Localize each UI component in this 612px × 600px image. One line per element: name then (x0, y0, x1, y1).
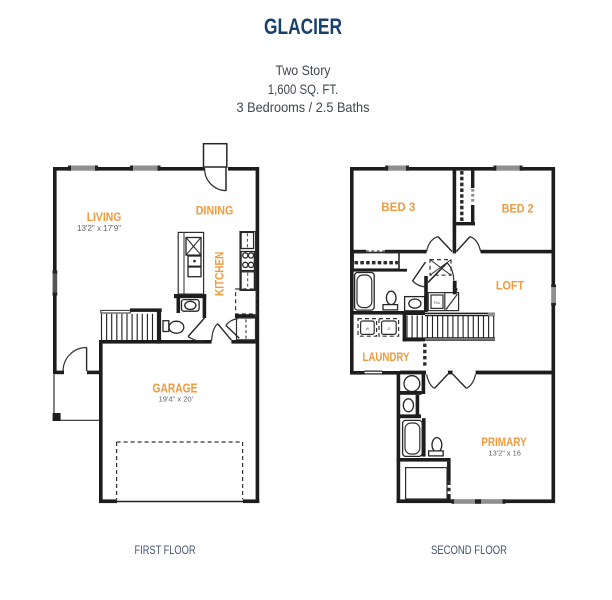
svg-text:FIRST FLOOR: FIRST FLOOR (135, 545, 196, 557)
svg-text:FAU: FAU (434, 301, 441, 305)
svg-text:GLACIER: GLACIER (264, 14, 342, 39)
svg-text:W: W (366, 327, 370, 331)
svg-text:3 Bedrooms / 2.5 Baths: 3 Bedrooms / 2.5 Baths (237, 99, 370, 115)
svg-text:KITCHEN: KITCHEN (213, 252, 227, 296)
svg-text:PRIMARY: PRIMARY (481, 435, 527, 449)
svg-text:Two Story: Two Story (276, 62, 331, 78)
svg-text:LOFT: LOFT (496, 279, 525, 293)
svg-text:BED 2: BED 2 (502, 202, 534, 216)
svg-text:19'4" x 20': 19'4" x 20' (159, 395, 194, 404)
svg-text:13'2" x 16: 13'2" x 16 (489, 449, 521, 458)
svg-text:SECOND FLOOR: SECOND FLOOR (431, 545, 507, 557)
svg-text:LIVING: LIVING (87, 210, 122, 224)
svg-text:LAUNDRY: LAUNDRY (363, 350, 410, 364)
svg-text:D: D (388, 327, 391, 331)
svg-text:1,600 SQ. FT.: 1,600 SQ. FT. (268, 81, 339, 97)
svg-text:13'2" x 17'9": 13'2" x 17'9" (77, 224, 121, 233)
svg-text:BED 3: BED 3 (381, 200, 415, 214)
svg-text:GARAGE: GARAGE (153, 380, 198, 395)
svg-text:DINING: DINING (196, 204, 234, 218)
